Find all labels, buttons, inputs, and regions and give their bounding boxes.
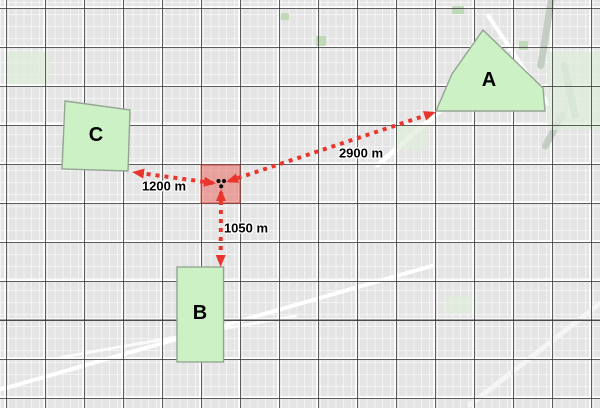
zone-a-label: A xyxy=(482,70,496,90)
incident-area-square[interactable] xyxy=(201,165,240,203)
graphics-layer xyxy=(0,0,600,408)
distance-label-c: 1200 m xyxy=(142,180,186,193)
measurement-arrow-a xyxy=(229,113,433,181)
map-canvas[interactable]: A B C 2900 m 1050 m 1200 m xyxy=(0,0,600,408)
zone-c-label: C xyxy=(89,125,103,145)
zone-b-label: B xyxy=(193,303,207,323)
distance-label-a: 2900 m xyxy=(339,147,383,160)
distance-label-b: 1050 m xyxy=(224,222,268,235)
